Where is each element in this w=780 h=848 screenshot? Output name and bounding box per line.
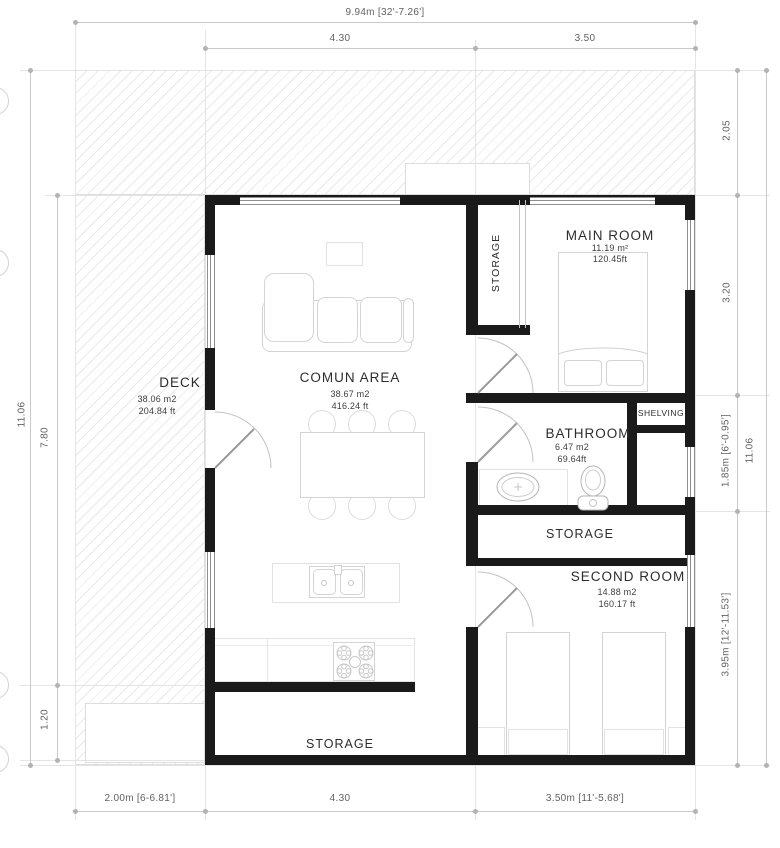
sofa-arm [403,298,414,343]
deck-hatch-left [75,195,205,765]
sink-basin [340,569,363,595]
window [207,255,215,348]
dim-marker [473,809,478,814]
dimension-line [205,48,695,49]
dim-marker [693,20,698,25]
dim-marker [55,758,60,763]
wall-kitchen-storage [205,682,415,692]
dimension-line [30,70,31,765]
wall-second-left [466,627,478,765]
entry-step [405,163,530,195]
sink-faucet [334,565,342,575]
counter-divider [267,639,268,681]
side-table [326,242,363,266]
dim-top-total: 9.94m [32'-7.26'] [285,7,485,18]
window [530,197,655,205]
dimension-line [766,70,767,765]
main-room-m2: 11.19 m² [530,243,690,253]
deck-hatch-top [75,70,695,195]
dim-top-a: 4.30 [240,33,440,44]
grid-line [20,70,770,71]
dim-bottom-a: 2.00m [6-6.81'] [60,793,220,804]
dim-marker [693,46,698,51]
dim-marker [735,193,740,198]
grid-line [20,765,770,766]
pillow [564,360,602,386]
dim-right-d: 3.95m [12'-11.53'] [721,570,732,700]
window [240,197,400,205]
storage-mid-label: STORAGE [500,527,660,541]
storage-closet-label: STORAGE [490,223,502,303]
second-room-ft: 160.17 ft [537,599,697,609]
dim-right-c: 1.85m [6'-0.95'] [721,391,732,511]
dim-marker [693,809,698,814]
grid-line [695,395,770,396]
comun-area-ft: 416.24 ft [270,401,430,411]
dim-marker [735,763,740,768]
sofa-cushion [360,297,402,343]
dimension-line [57,195,58,760]
dim-right-b: 3.20 [722,253,733,333]
closet-door-line [519,200,520,328]
dim-top-b: 3.50 [485,33,685,44]
wall-mainroom-divider [466,393,695,403]
bathroom-m2: 6.47 m2 [492,442,652,452]
pillow [604,729,664,755]
dim-right-a: 2.05 [722,91,733,171]
second-room-m2: 14.88 m2 [537,587,697,597]
wall [685,627,695,765]
night-table [668,727,686,756]
wall-bottom [205,755,695,765]
dimension-line [75,811,695,812]
dim-marker [473,46,478,51]
window [207,552,215,628]
wall [205,628,215,765]
dim-bottom-c: 3.50m [11'-5.68'] [505,793,665,804]
dim-bottom-b: 4.30 [260,793,420,804]
sofa-chaise [264,273,314,342]
stove [333,642,375,681]
dimension-line [75,22,695,23]
grid-line [695,511,770,512]
dimension-line [737,70,738,765]
dim-left-total: 11.06 [17,375,28,455]
second-room-label: SECOND ROOM [548,569,708,584]
grid-bubble [0,671,9,699]
dim-marker [28,68,33,73]
wall-closet-left [466,195,478,335]
dim-marker [73,20,78,25]
sink-basin [313,569,336,595]
pillow [606,360,644,386]
deck-area-m2: 38.06 m2 [117,394,197,404]
dim-right-total: 11.06 [745,411,756,491]
pillow [508,729,568,755]
wall [685,195,695,220]
wall-bath-bottom [466,505,695,515]
deck-label: DECK [140,375,220,390]
main-room-ft: 120.45ft [530,254,690,264]
bathroom-vanity [479,469,568,506]
sofa-cushion [317,297,358,343]
night-table [477,727,505,756]
dim-marker [735,68,740,73]
comun-area-label: COMUN AREA [270,370,430,385]
dim-marker [735,509,740,514]
dim-marker [203,46,208,51]
storage-bottom-label: STORAGE [260,737,420,751]
dim-marker [55,193,60,198]
counter-line [215,645,413,646]
main-room-label: MAIN ROOM [530,228,690,243]
dim-marker [764,68,769,73]
wall [400,195,530,205]
dim-marker [764,763,769,768]
grid-bubble [0,87,9,115]
deck-pad [85,703,205,763]
wall-closet-bottom [466,325,530,335]
window [687,447,695,497]
grid-line [75,22,76,820]
bathroom-label: BATHROOM [508,426,668,441]
dim-left-b: 1.20 [40,680,51,760]
shelving-label: SHELVING [632,408,690,418]
grid-bubble [0,745,9,773]
grid-line [695,22,696,820]
wall [205,195,215,255]
comun-area-m2: 38.67 m2 [270,389,430,399]
dim-marker [28,763,33,768]
dim-marker [55,683,60,688]
dining-table [300,432,425,498]
wall [685,290,695,447]
grid-bubble [0,249,9,277]
dim-marker [735,393,740,398]
wall [205,468,215,552]
closet-door-line [525,200,526,328]
dim-marker [203,809,208,814]
dim-left-a: 7.80 [40,398,51,478]
grid-line [20,760,207,761]
wall-storage-bottom [466,558,695,566]
floor-plan: DECK 38.06 m2 204.84 ft COMUN AREA 38.67… [0,0,780,848]
deck-area-ft: 204.84 ft [117,406,197,416]
bathroom-ft: 69.64ft [492,454,652,464]
dim-marker [73,809,78,814]
